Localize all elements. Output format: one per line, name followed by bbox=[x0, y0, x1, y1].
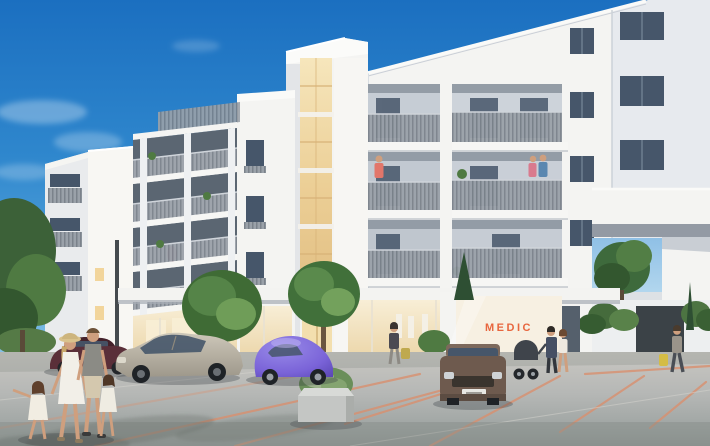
medic-sign: MEDIC bbox=[485, 322, 533, 334]
balcony-person-coral bbox=[375, 156, 384, 179]
shopper-bag bbox=[401, 348, 410, 359]
balcony-railings bbox=[368, 112, 562, 278]
shop-bush bbox=[418, 330, 450, 354]
yellow-bag bbox=[659, 354, 668, 366]
recessed-balconies bbox=[362, 78, 568, 288]
balcony-pier bbox=[440, 78, 452, 288]
architectural-rendering: MEDIC bbox=[0, 0, 710, 446]
balcony-plant bbox=[457, 169, 467, 179]
parapet-windows bbox=[246, 140, 264, 278]
rendering-canvas: MEDIC bbox=[0, 0, 710, 446]
bridge-slab bbox=[592, 188, 710, 226]
